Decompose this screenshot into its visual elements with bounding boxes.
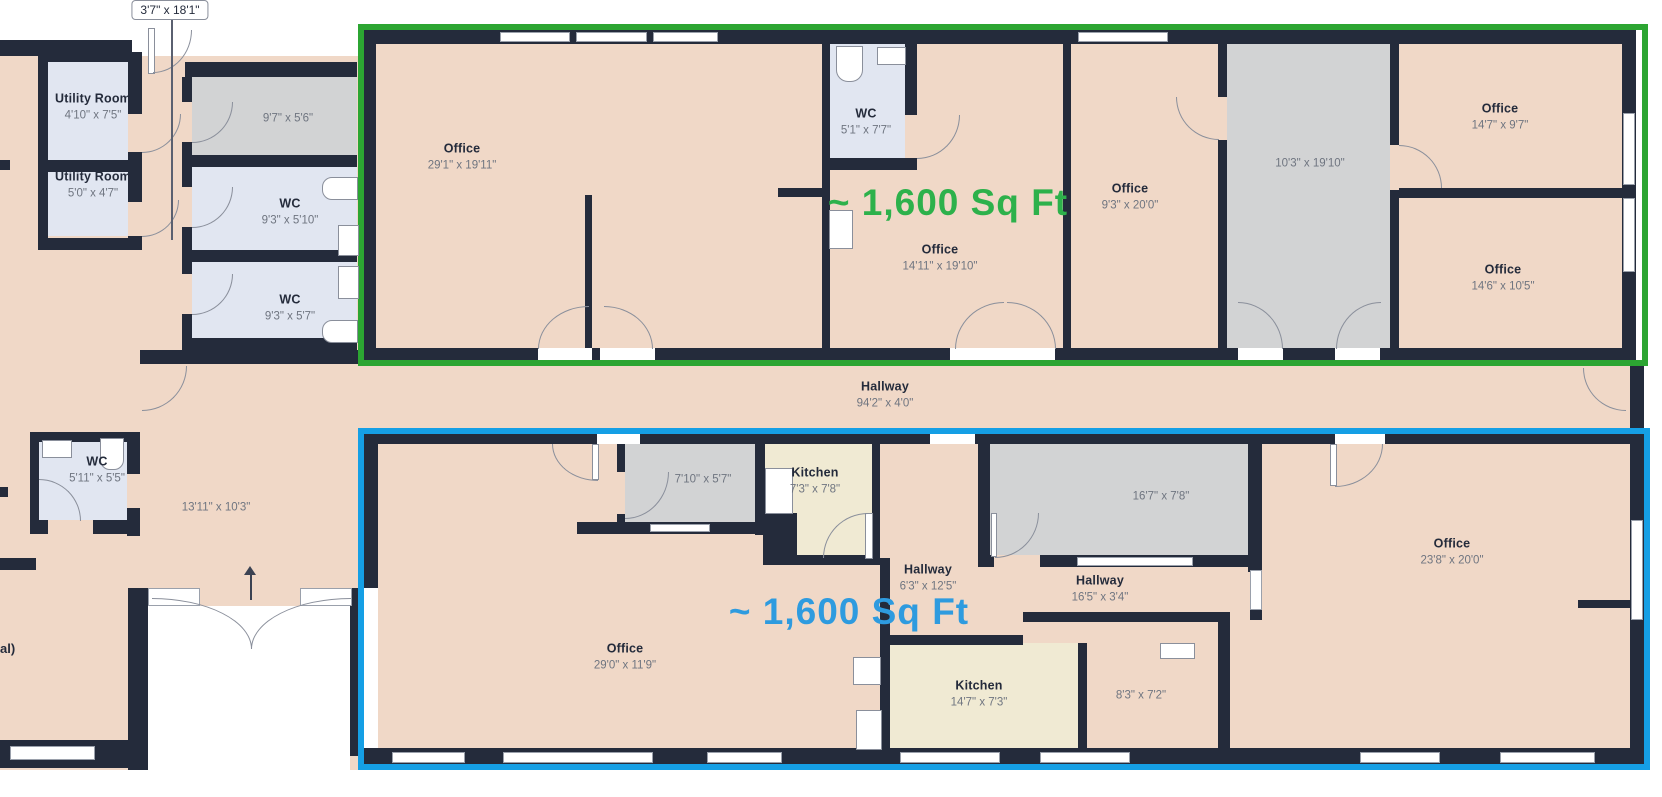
wall [192, 155, 357, 167]
room-label-office-29-0: Office 29'0" x 11'9" [594, 640, 656, 675]
room-dims: 7'10" x 5'7" [675, 472, 732, 489]
room-label-store-7-10: 7'10" x 5'7" [675, 472, 732, 489]
room-label-office-14-11: Office 14'11" x 19'10" [902, 241, 977, 276]
blue-suite-outline [358, 428, 1650, 770]
room-dims: 23'8" x 20'0" [1420, 553, 1483, 570]
wall [30, 432, 39, 532]
room-name: WC [69, 453, 125, 471]
sink-fixture [42, 440, 72, 458]
room-dims: 13'11" x 10'3" [182, 500, 251, 517]
room-name: Kitchen [951, 677, 1008, 695]
room-label-wc-5-11: WC 5'11" x 5'5" [69, 453, 125, 488]
wall [127, 432, 140, 474]
room-dims: 94'2" x 4'0" [857, 396, 914, 413]
room-name: Office [1471, 261, 1534, 279]
wall [182, 227, 192, 274]
room-label-kitchen-7-3: Kitchen 7'3" x 7'8" [790, 464, 840, 499]
edge-partial-label: al) [0, 641, 15, 656]
room-dims: 29'0" x 11'9" [594, 658, 656, 675]
room-label-store-10-3: 10'3" x 19'10" [1275, 156, 1344, 173]
callout-leader-line [171, 20, 173, 240]
kitchen-unit-fixture [856, 710, 882, 750]
toilet-fixture [836, 46, 863, 82]
room-name: Kitchen [790, 464, 840, 482]
room-label-utility-2: Utility Room 5'0" x 4'7" [55, 168, 131, 203]
room-dims: 5'11" x 5'5" [69, 471, 125, 488]
room-label-kitchen-14-7: Kitchen 14'7" x 7'3" [951, 677, 1008, 712]
room-dims: 14'6" x 10'5" [1471, 279, 1534, 296]
room-dims: 9'7" x 5'6" [263, 111, 313, 128]
room-label-store-16-7: 16'7" x 7'8" [1133, 489, 1190, 506]
room-name: WC [265, 291, 315, 309]
room-name: Hallway [857, 378, 914, 396]
room-dims: 8'3" x 7'2" [1116, 688, 1166, 705]
room-label-13-11: 13'11" x 10'3" [182, 500, 251, 517]
floor-plan: 3'7" x 18'1" Utility Room 4'10" x 7'5" U… [0, 0, 1662, 797]
room-dims: 9'3" x 5'10" [262, 213, 319, 230]
blue-sqft-label: ~ 1,600 Sq Ft [729, 591, 969, 633]
room-dims: 14'11" x 19'10" [902, 259, 977, 276]
room-dims: 9'3" x 5'7" [265, 309, 315, 326]
window [10, 746, 95, 760]
wall [30, 520, 48, 534]
room-label-office-9-3: Office 9'3" x 20'0" [1102, 180, 1159, 215]
room-label-hallway-16-5: Hallway 16'5" x 3'4" [1072, 572, 1129, 607]
room-dims: 14'7" x 7'3" [951, 695, 1008, 712]
room-name: Office [594, 640, 656, 658]
room-dims: 9'3" x 20'0" [1102, 198, 1159, 215]
room-label-store-9-7: 9'7" x 5'6" [263, 111, 313, 128]
wall-stub [0, 160, 10, 170]
wall [192, 250, 357, 262]
room-dims: 16'7" x 7'8" [1133, 489, 1190, 506]
room-label-8-3: 8'3" x 7'2" [1116, 688, 1166, 705]
room-label-office-29-1: Office 29'1" x 19'11" [428, 140, 497, 175]
room-name: Utility Room [55, 90, 131, 108]
green-sqft-label: ~ 1,600 Sq Ft [828, 182, 1068, 224]
room-label-utility-1: Utility Room 4'10" x 7'5" [55, 90, 131, 125]
wall-stub [0, 487, 8, 497]
room-label-wc-9-3a: WC 9'3" x 5'10" [262, 195, 319, 230]
toilet-fixture [322, 320, 358, 343]
room-name: Office [428, 140, 497, 158]
kitchen-unit-fixture [765, 468, 793, 514]
sink-fixture [877, 47, 906, 65]
entrance-arrow-head [244, 566, 256, 575]
room-name: Utility Room [55, 168, 131, 186]
room-name: WC [841, 105, 891, 123]
room-dims: 5'1" x 7'7" [841, 123, 891, 140]
room-label-wc-5-1: WC 5'1" x 7'7" [841, 105, 891, 140]
room-label-hallway-94: Hallway 94'2" x 4'0" [857, 378, 914, 413]
room-dims: 5'0" x 4'7" [55, 186, 131, 203]
wall [185, 62, 357, 77]
room-dims: 14'7" x 9'7" [1472, 118, 1529, 135]
room-name: Office [902, 241, 977, 259]
wall [182, 142, 192, 187]
room-dims: 7'3" x 7'8" [790, 482, 840, 499]
wall [38, 52, 140, 62]
room-label-office-14-6: Office 14'6" x 10'5" [1471, 261, 1534, 296]
room-label-office-14-7: Office 14'7" x 9'7" [1472, 100, 1529, 135]
wall [182, 77, 192, 102]
wall [38, 238, 140, 250]
room-name: WC [262, 195, 319, 213]
sink-fixture [1160, 643, 1195, 659]
toilet-fixture [322, 177, 358, 200]
room-dims: 16'5" x 3'4" [1072, 590, 1129, 607]
callout-dims-text: 3'7" x 18'1" [140, 3, 199, 17]
room-name: Office [1472, 100, 1529, 118]
room-dims: 10'3" x 19'10" [1275, 156, 1344, 173]
wall-stub [0, 558, 36, 570]
room-dims: 4'10" x 7'5" [55, 108, 131, 125]
room-name: Office [1102, 180, 1159, 198]
entrance-arrow [250, 575, 252, 600]
room-dims: 29'1" x 19'11" [428, 158, 497, 175]
wall [38, 52, 48, 250]
room-name: Office [1420, 535, 1483, 553]
radiator-fixture [338, 266, 359, 299]
kitchen-unit-fixture [853, 657, 881, 685]
wall [140, 350, 362, 364]
wall [1630, 366, 1644, 430]
room-name: Hallway [1072, 572, 1129, 590]
radiator-fixture [338, 225, 359, 256]
room-label-office-23-8: Office 23'8" x 20'0" [1420, 535, 1483, 570]
wall [93, 520, 140, 534]
callout-dimension: 3'7" x 18'1" [131, 0, 208, 20]
room-label-wc-9-3b: WC 9'3" x 5'7" [265, 291, 315, 326]
room-name: Hallway [900, 561, 957, 579]
